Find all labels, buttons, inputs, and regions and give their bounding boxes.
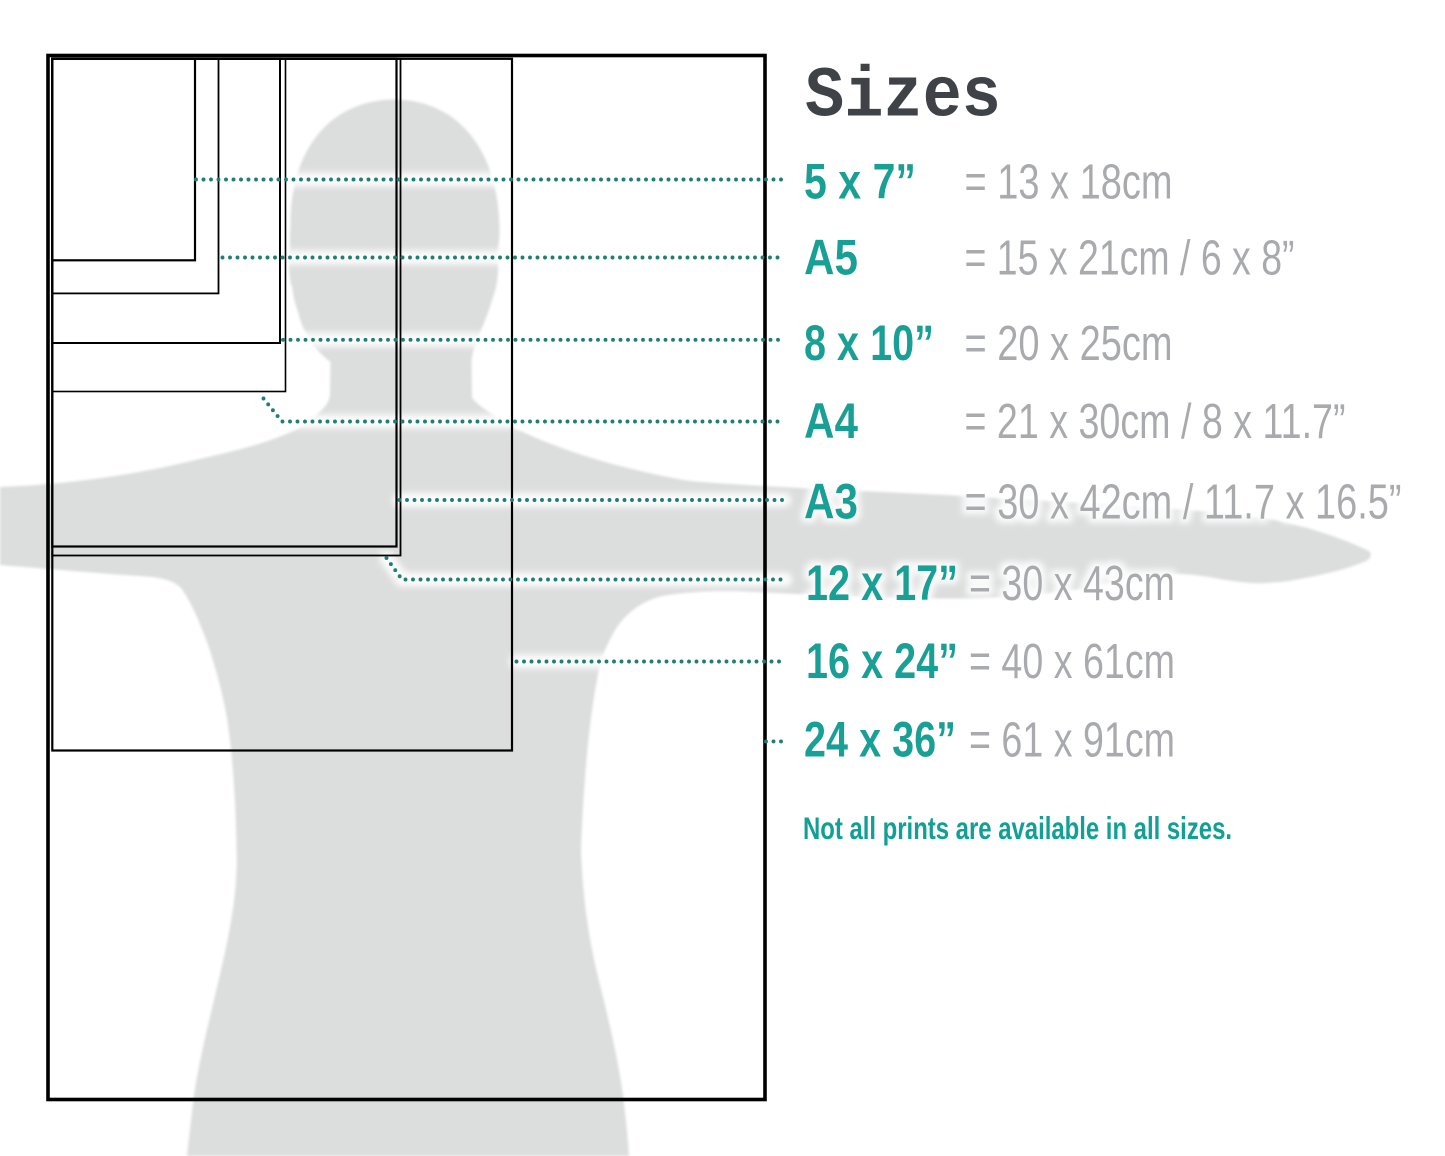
svg-text:A3: A3: [804, 474, 858, 530]
svg-text:24 x 36”: 24 x 36”: [804, 712, 956, 768]
svg-text:= 13 x 18cm: = 13 x 18cm: [965, 156, 1173, 210]
svg-text:= 40 x 61cm: = 40 x 61cm: [969, 635, 1175, 689]
svg-text:= 30 x 42cm / 11.7 x 16.5”: = 30 x 42cm / 11.7 x 16.5”: [965, 476, 1402, 530]
svg-text:5 x 7”: 5 x 7”: [804, 154, 916, 210]
svg-text:Sizes: Sizes: [805, 58, 1001, 138]
svg-text:8 x 10”: 8 x 10”: [804, 315, 934, 371]
svg-text:Not all prints are available i: Not all prints are available in all size…: [803, 810, 1232, 846]
svg-text:= 30 x 43cm: = 30 x 43cm: [969, 557, 1175, 611]
svg-text:16 x 24”: 16 x 24”: [806, 633, 958, 689]
svg-text:= 20 x 25cm: = 20 x 25cm: [965, 317, 1173, 371]
svg-text:= 21 x 30cm / 8 x 11.7”: = 21 x 30cm / 8 x 11.7”: [965, 395, 1346, 449]
svg-text:= 61 x 91cm: = 61 x 91cm: [969, 714, 1175, 768]
svg-text:12 x 17”: 12 x 17”: [806, 555, 958, 611]
svg-text:A4: A4: [804, 393, 858, 449]
svg-text:A5: A5: [804, 230, 858, 286]
svg-text:= 15 x 21cm / 6 x 8”: = 15 x 21cm / 6 x 8”: [965, 232, 1295, 286]
